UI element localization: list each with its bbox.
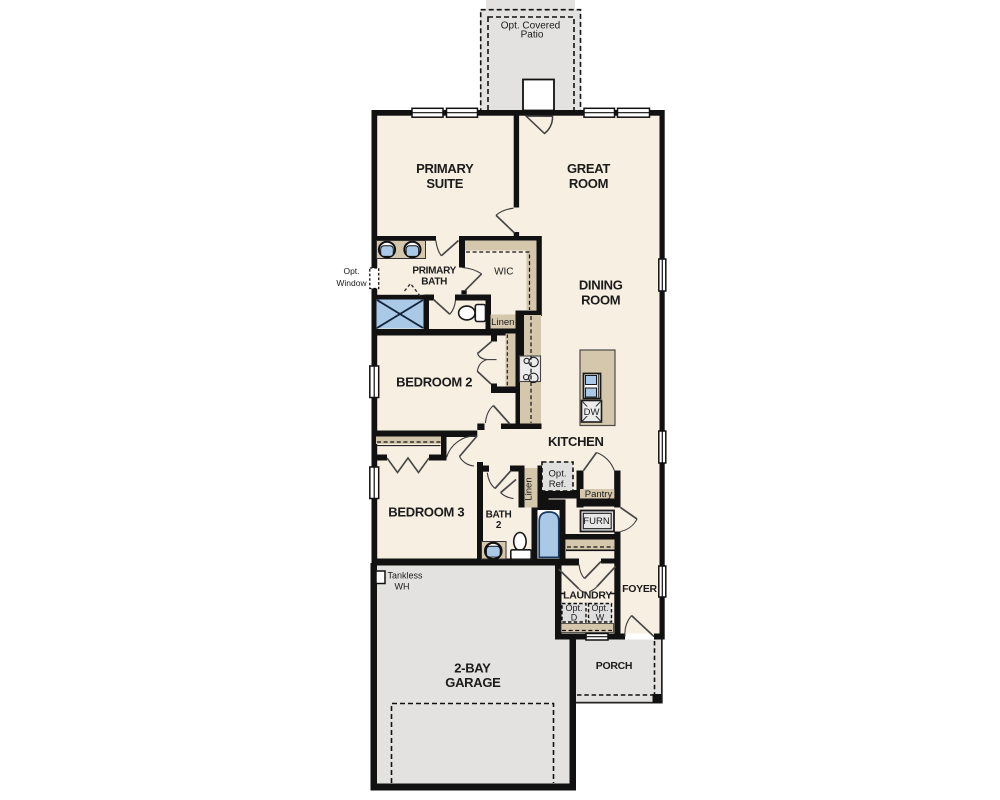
svg-text:Pantry: Pantry xyxy=(585,489,613,500)
svg-text:KITCHEN: KITCHEN xyxy=(548,434,604,449)
svg-text:PORCH: PORCH xyxy=(596,660,632,672)
svg-text:FURN: FURN xyxy=(583,516,610,527)
svg-text:Linen: Linen xyxy=(491,317,514,328)
svg-text:2-BAY: 2-BAY xyxy=(454,661,491,676)
svg-text:W: W xyxy=(596,613,605,623)
svg-text:D: D xyxy=(571,613,578,623)
svg-text:WH: WH xyxy=(395,582,410,592)
svg-text:BATH: BATH xyxy=(486,510,512,521)
svg-text:ROOM: ROOM xyxy=(581,293,620,308)
svg-text:Opt.: Opt. xyxy=(591,603,608,613)
svg-text:Linen: Linen xyxy=(523,477,534,500)
svg-text:GREAT: GREAT xyxy=(567,161,610,176)
svg-text:LAUNDRY: LAUNDRY xyxy=(563,589,612,601)
svg-text:ROOM: ROOM xyxy=(569,176,608,191)
svg-text:GARAGE: GARAGE xyxy=(445,675,501,690)
svg-text:BEDROOM 3: BEDROOM 3 xyxy=(388,505,464,520)
svg-text:PRIMARY: PRIMARY xyxy=(416,161,474,176)
svg-text:PRIMARY: PRIMARY xyxy=(412,266,456,277)
svg-text:WIC: WIC xyxy=(494,267,513,278)
svg-text:FOYER: FOYER xyxy=(622,583,657,595)
svg-text:Tankless: Tankless xyxy=(388,571,424,581)
svg-text:BEDROOM 2: BEDROOM 2 xyxy=(396,374,472,389)
svg-text:SUITE: SUITE xyxy=(426,176,463,191)
svg-text:Window: Window xyxy=(336,278,367,288)
svg-text:Opt.: Opt. xyxy=(343,266,359,276)
svg-text:DW: DW xyxy=(584,407,600,418)
svg-text:Ref.: Ref. xyxy=(549,479,566,490)
svg-text:BATH: BATH xyxy=(421,277,447,288)
svg-text:Opt.: Opt. xyxy=(565,603,582,613)
svg-text:Patio: Patio xyxy=(521,30,544,41)
svg-text:2: 2 xyxy=(496,520,502,531)
svg-text:Opt.: Opt. xyxy=(549,469,567,480)
svg-text:DINING: DINING xyxy=(579,278,623,293)
